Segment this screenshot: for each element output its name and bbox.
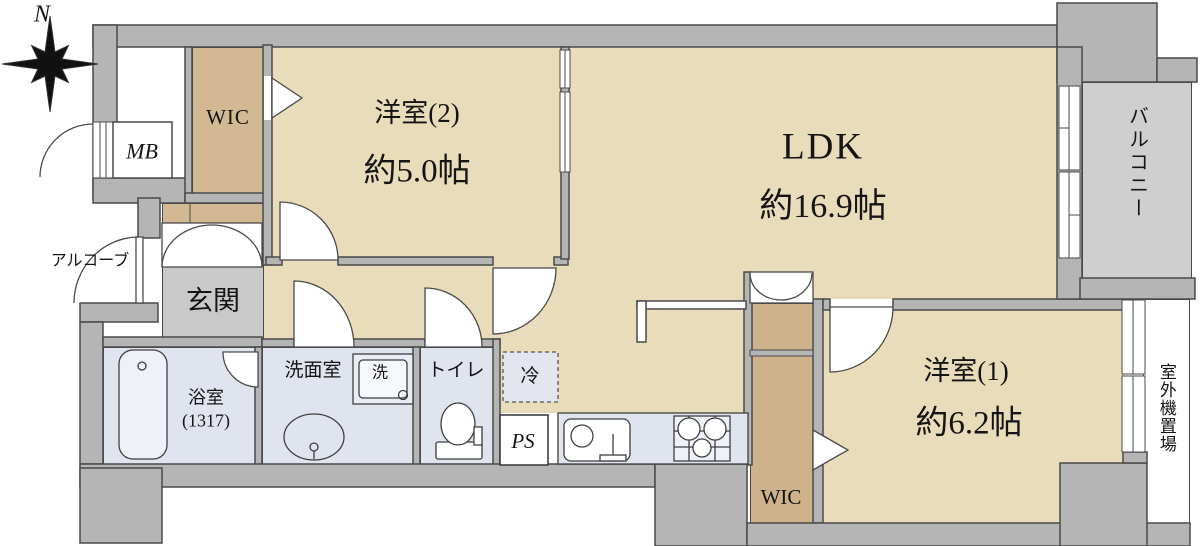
label-washer: 洗 <box>372 366 388 383</box>
bathtub <box>119 350 167 459</box>
room-label-yoshitsu2-name: 洋室(2) <box>374 99 459 127</box>
floorplan-linework <box>0 0 1200 546</box>
room-label-wic-bottom: WIC <box>761 486 802 508</box>
kitchen-partition <box>637 301 746 342</box>
yoshitsu1-door-arc <box>830 307 893 372</box>
room-label-mb: MB <box>126 139 158 162</box>
room-label-yoshitsu1-name: 洋室(1) <box>923 357 1008 385</box>
washroom-door-arc <box>294 281 354 347</box>
room-label-washroom: 洗面室 <box>284 361 341 381</box>
label-fridge: 冷 <box>520 367 539 387</box>
wic-top-door <box>264 76 271 120</box>
hall-ldk-door-arc <box>493 268 556 334</box>
room-label-wic-top: WIC <box>206 106 250 128</box>
room-label-bath-size: (1317) <box>182 412 230 431</box>
wic-top-door-tri <box>272 78 302 118</box>
floorplan: N WIC MB 洋室(2) 約5.0帖 LDK 約16.9帖 バルコニー アル… <box>0 0 1200 546</box>
bath-door-arc <box>223 352 258 387</box>
genkan-doors <box>162 223 262 267</box>
room-label-toilet: トイレ <box>427 361 484 381</box>
wic-top-divider <box>750 350 813 356</box>
compass-north-label: N <box>34 2 50 27</box>
wic-bottom-doors <box>750 272 813 303</box>
yoshitsu2-door-arc <box>280 202 338 260</box>
room-label-outdoor-unit: 室外機置場 <box>1157 363 1175 453</box>
toilet-door-arc <box>425 288 482 347</box>
room-label-ldk-name: LDK <box>782 129 864 168</box>
entrance-door-panel <box>136 237 143 303</box>
toilet-bowl <box>441 403 475 445</box>
room-label-ldk-size: 約16.9帖 <box>759 189 887 225</box>
room-label-yoshitsu1-size: 約6.2帖 <box>915 407 1022 442</box>
wic-bottom-door-tri <box>813 430 848 470</box>
room-label-balcony: バルコニー <box>1126 106 1147 221</box>
room-label-alcove: アルコーブ <box>51 254 130 271</box>
mb-door-arc <box>40 124 93 177</box>
compass-star <box>2 16 98 112</box>
room-label-bath-name: 浴室 <box>188 389 224 408</box>
room-label-genkan: 玄関 <box>186 287 240 315</box>
label-ps: PS <box>511 430 534 452</box>
room-label-yoshitsu2-size: 約5.0帖 <box>363 155 470 190</box>
